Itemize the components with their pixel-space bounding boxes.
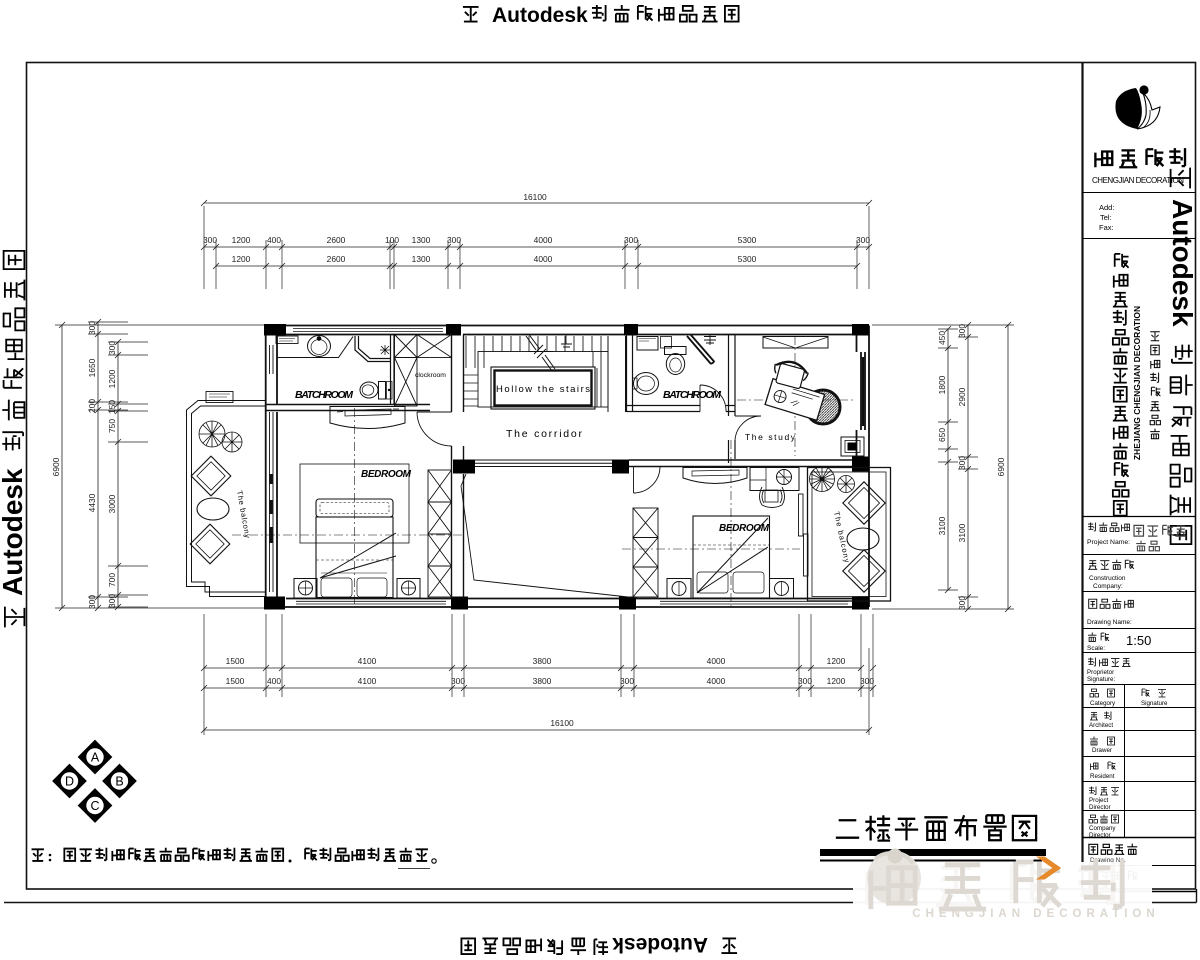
svg-text:Construction: Construction xyxy=(1089,575,1126,582)
svg-text:B: B xyxy=(115,775,123,789)
svg-text:4000: 4000 xyxy=(707,656,726,666)
svg-text:1800: 1800 xyxy=(937,375,947,394)
svg-text:CHENGJIAN DECORATION: CHENGJIAN DECORATION xyxy=(912,908,1159,920)
svg-text:Autodesk: Autodesk xyxy=(492,4,588,27)
svg-text:A: A xyxy=(91,751,100,765)
svg-text:300: 300 xyxy=(451,676,465,686)
svg-text:1200: 1200 xyxy=(107,369,117,388)
svg-text:Fax:: Fax: xyxy=(1099,223,1114,232)
svg-text:ZHEJIANG CHENGJIAN DECORATION: ZHEJIANG CHENGJIAN DECORATION xyxy=(1132,306,1142,460)
svg-text:Project: Project xyxy=(1089,797,1109,804)
svg-text:Company:: Company: xyxy=(1093,583,1123,590)
svg-text:2600: 2600 xyxy=(327,235,346,245)
svg-text:5300: 5300 xyxy=(738,235,757,245)
svg-text:Architect: Architect xyxy=(1089,722,1113,729)
svg-text:1:50: 1:50 xyxy=(1126,633,1151,648)
svg-text:450: 450 xyxy=(937,331,947,345)
svg-text:Add:: Add: xyxy=(1099,203,1114,212)
svg-text:6900: 6900 xyxy=(996,457,1006,476)
svg-text:300: 300 xyxy=(957,324,967,338)
svg-text:1500: 1500 xyxy=(226,676,245,686)
svg-text:Proprietor: Proprietor xyxy=(1087,669,1114,676)
svg-text:100: 100 xyxy=(385,235,399,245)
svg-text:4000: 4000 xyxy=(707,676,726,686)
svg-text:The study: The study xyxy=(745,432,796,442)
svg-text:6900: 6900 xyxy=(51,457,61,476)
svg-text:1300: 1300 xyxy=(412,254,431,264)
svg-text:4430: 4430 xyxy=(87,493,97,512)
svg-text:4100: 4100 xyxy=(358,676,377,686)
svg-text:Scale:: Scale: xyxy=(1087,645,1105,652)
svg-text:300: 300 xyxy=(957,596,967,610)
svg-text:1200: 1200 xyxy=(232,254,251,264)
svg-text:300: 300 xyxy=(860,676,874,686)
svg-text:5300: 5300 xyxy=(738,254,757,264)
svg-text:1650: 1650 xyxy=(87,358,97,377)
svg-text:300: 300 xyxy=(798,676,812,686)
svg-text:The balcony: The balcony xyxy=(832,511,852,564)
svg-text:3800: 3800 xyxy=(533,676,552,686)
svg-text:3100: 3100 xyxy=(957,523,967,542)
svg-text:BEDROOM: BEDROOM xyxy=(719,523,770,534)
svg-text:BEDROOM: BEDROOM xyxy=(361,469,412,480)
svg-text:16100: 16100 xyxy=(523,192,547,202)
svg-text:1200: 1200 xyxy=(232,235,251,245)
svg-text:CHENGJIAN DECORATION: CHENGJIAN DECORATION xyxy=(1092,176,1184,185)
svg-text:BATCHROOM: BATCHROOM xyxy=(663,389,721,401)
svg-text:300: 300 xyxy=(620,676,634,686)
svg-text:4000: 4000 xyxy=(534,235,553,245)
svg-text:4000: 4000 xyxy=(534,254,553,264)
svg-text:clockroom: clockroom xyxy=(415,372,446,379)
svg-text:300: 300 xyxy=(957,456,967,470)
svg-text:Project Name:: Project Name: xyxy=(1087,539,1130,546)
svg-text:D: D xyxy=(65,775,74,789)
svg-text:Autodesk: Autodesk xyxy=(612,933,708,956)
svg-text:300: 300 xyxy=(87,321,97,335)
svg-text:Autodesk: Autodesk xyxy=(0,468,28,596)
svg-text:Company: Company xyxy=(1089,825,1116,832)
svg-text:750: 750 xyxy=(107,419,117,433)
svg-text:Category: Category xyxy=(1090,700,1116,707)
svg-text:300: 300 xyxy=(447,235,461,245)
svg-text:300: 300 xyxy=(203,235,217,245)
svg-text:1200: 1200 xyxy=(827,676,846,686)
svg-text:1300: 1300 xyxy=(412,235,431,245)
svg-text:650: 650 xyxy=(937,428,947,442)
svg-text:200: 200 xyxy=(87,399,97,413)
svg-text:BATCHROOM: BATCHROOM xyxy=(295,389,353,401)
svg-text:Drawer: Drawer xyxy=(1092,747,1112,754)
svg-text:300: 300 xyxy=(624,235,638,245)
svg-text:700: 700 xyxy=(107,573,117,587)
svg-text:300: 300 xyxy=(107,594,117,608)
svg-text:The corridor: The corridor xyxy=(506,428,583,440)
svg-text:3000: 3000 xyxy=(107,494,117,513)
svg-text:1500: 1500 xyxy=(226,656,245,666)
svg-text:4100: 4100 xyxy=(358,656,377,666)
svg-text:400: 400 xyxy=(267,676,281,686)
svg-text:1200: 1200 xyxy=(827,656,846,666)
svg-text:Hollow the stairs: Hollow the stairs xyxy=(496,384,590,395)
svg-text:2600: 2600 xyxy=(327,254,346,264)
svg-text:3800: 3800 xyxy=(533,656,552,666)
svg-text:The balcony: The balcony xyxy=(235,490,252,539)
svg-text:400: 400 xyxy=(267,235,281,245)
svg-text:Signature:: Signature: xyxy=(1087,676,1115,683)
svg-text:Drawing Name:: Drawing Name: xyxy=(1087,619,1132,626)
svg-text:300: 300 xyxy=(856,235,870,245)
svg-text:300: 300 xyxy=(107,341,117,355)
svg-text:Signature: Signature xyxy=(1141,700,1168,707)
svg-text:3100: 3100 xyxy=(937,516,947,535)
svg-text:C: C xyxy=(90,799,99,813)
svg-text:Autodesk: Autodesk xyxy=(1167,199,1198,327)
svg-text:Director: Director xyxy=(1089,804,1111,811)
svg-text:Tel:: Tel: xyxy=(1100,213,1112,222)
svg-text:2900: 2900 xyxy=(957,387,967,406)
svg-text:Resident: Resident xyxy=(1090,773,1115,780)
svg-text:16100: 16100 xyxy=(550,718,574,728)
